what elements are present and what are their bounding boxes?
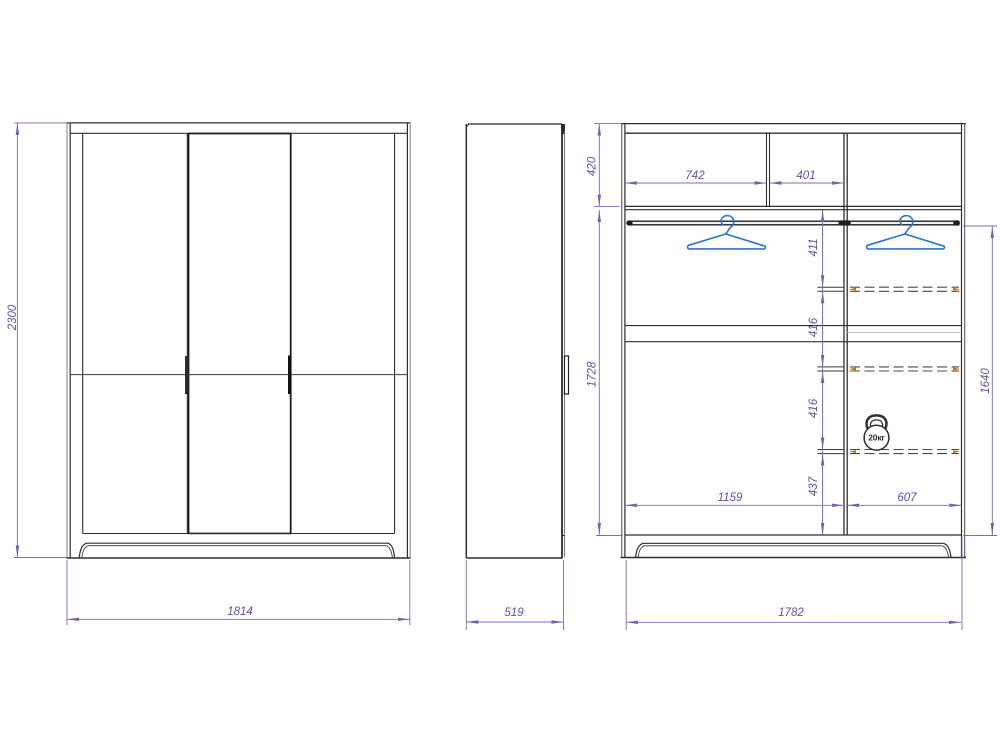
svg-text:2300: 2300 <box>7 304 19 331</box>
svg-text:519: 519 <box>504 607 524 619</box>
svg-text:416: 416 <box>808 398 820 418</box>
svg-text:1159: 1159 <box>718 492 743 504</box>
svg-text:411: 411 <box>808 238 820 256</box>
svg-text:20кг: 20кг <box>868 433 885 443</box>
svg-text:607: 607 <box>897 492 917 504</box>
svg-text:437: 437 <box>808 476 820 496</box>
svg-text:1640: 1640 <box>980 368 992 394</box>
svg-text:401: 401 <box>796 170 815 182</box>
svg-text:1814: 1814 <box>227 606 253 618</box>
svg-text:416: 416 <box>808 317 820 337</box>
svg-text:1728: 1728 <box>587 361 599 387</box>
svg-text:742: 742 <box>685 170 705 182</box>
svg-text:1782: 1782 <box>778 607 804 619</box>
svg-text:420: 420 <box>587 156 599 176</box>
